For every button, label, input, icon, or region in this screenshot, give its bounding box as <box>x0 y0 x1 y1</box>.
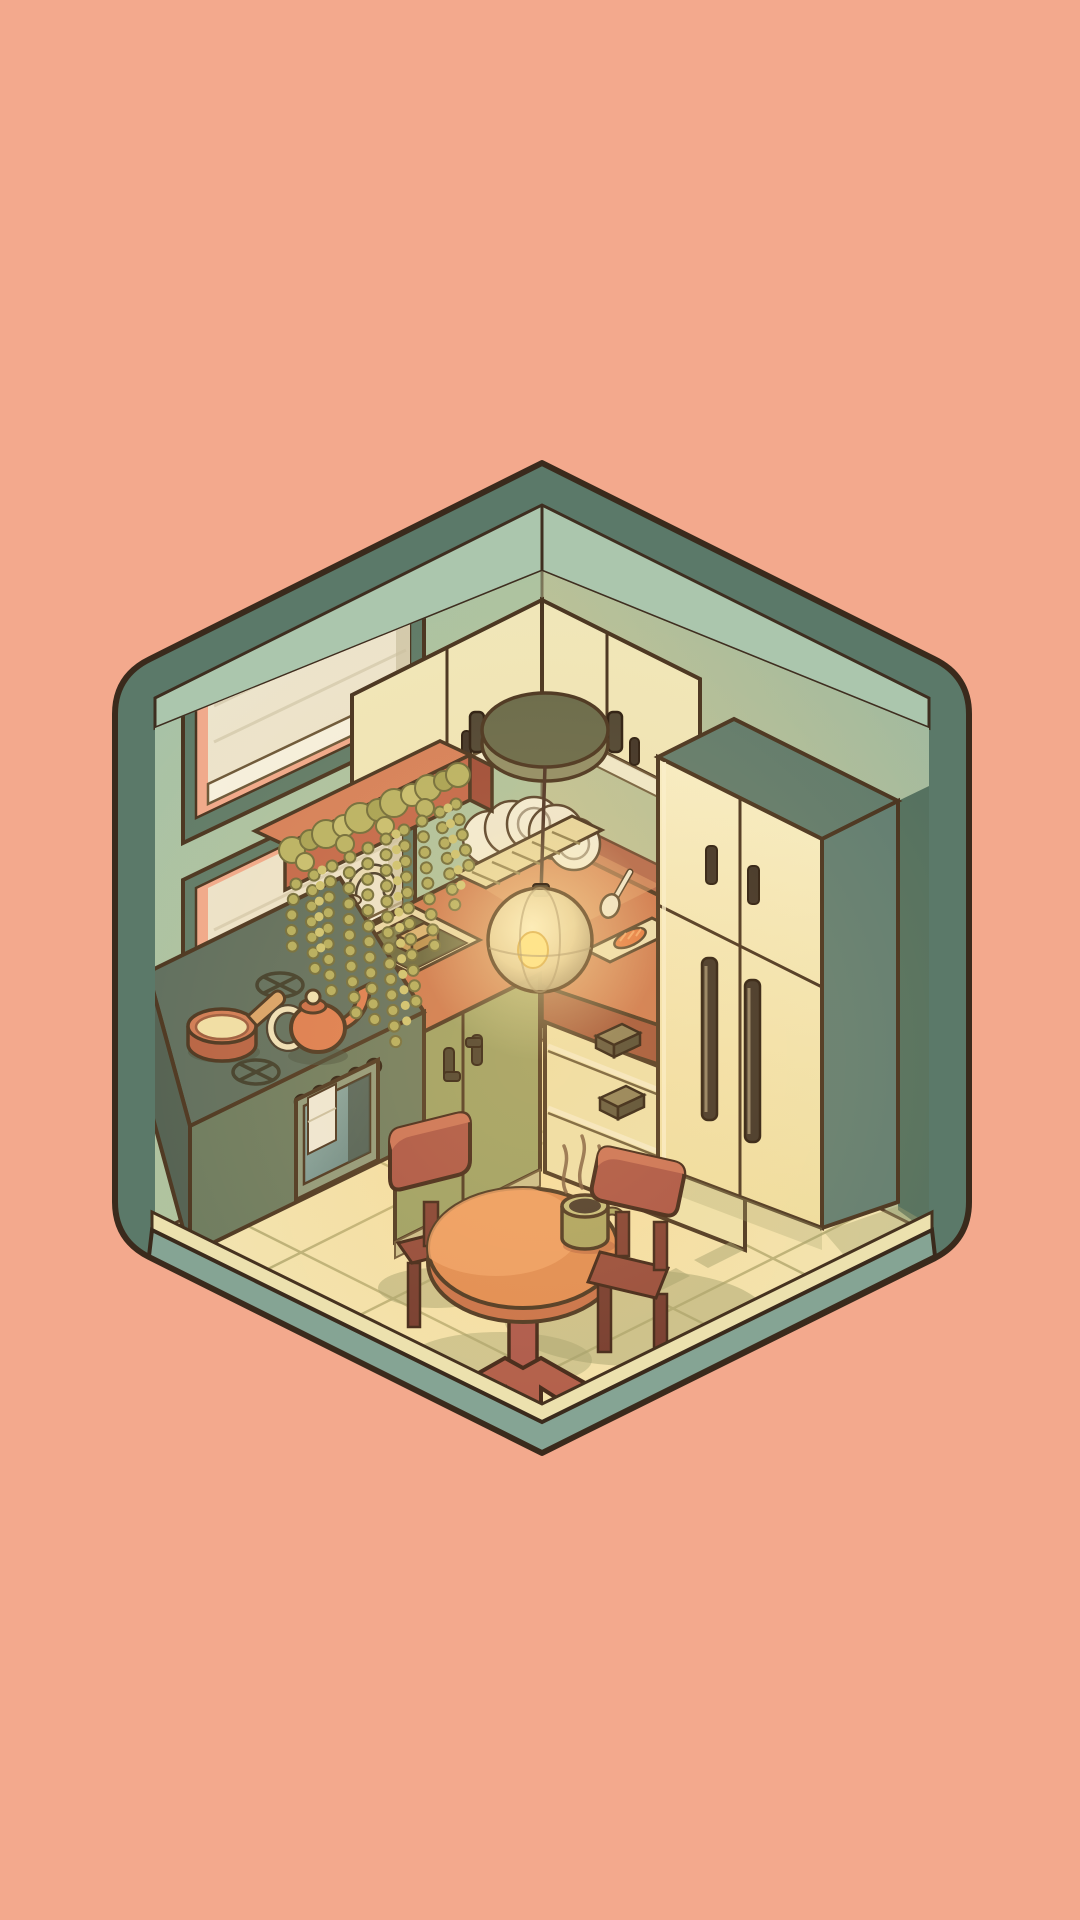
scene-canvas <box>0 0 1080 1920</box>
kitchen-diorama <box>0 0 1080 1920</box>
